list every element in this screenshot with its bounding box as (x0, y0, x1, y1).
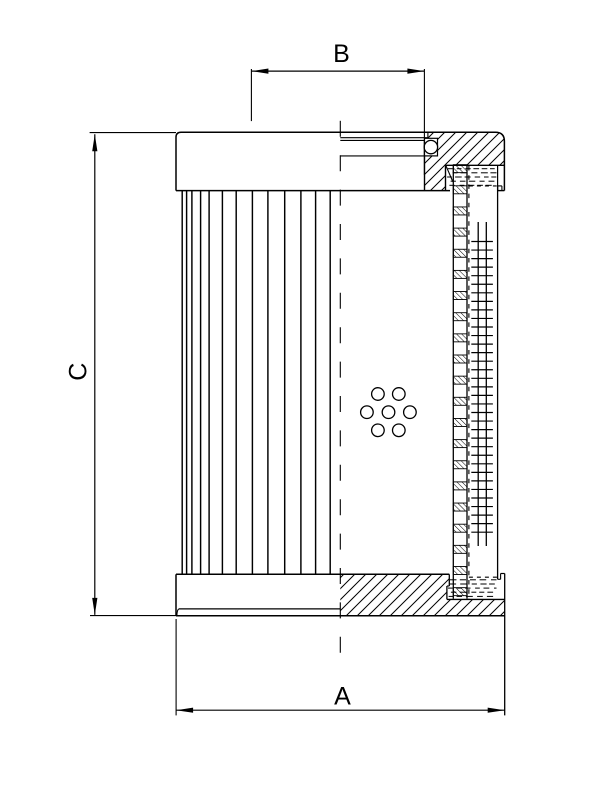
svg-text:A: A (334, 683, 351, 711)
svg-text:C: C (65, 363, 93, 381)
svg-text:B: B (333, 40, 350, 68)
